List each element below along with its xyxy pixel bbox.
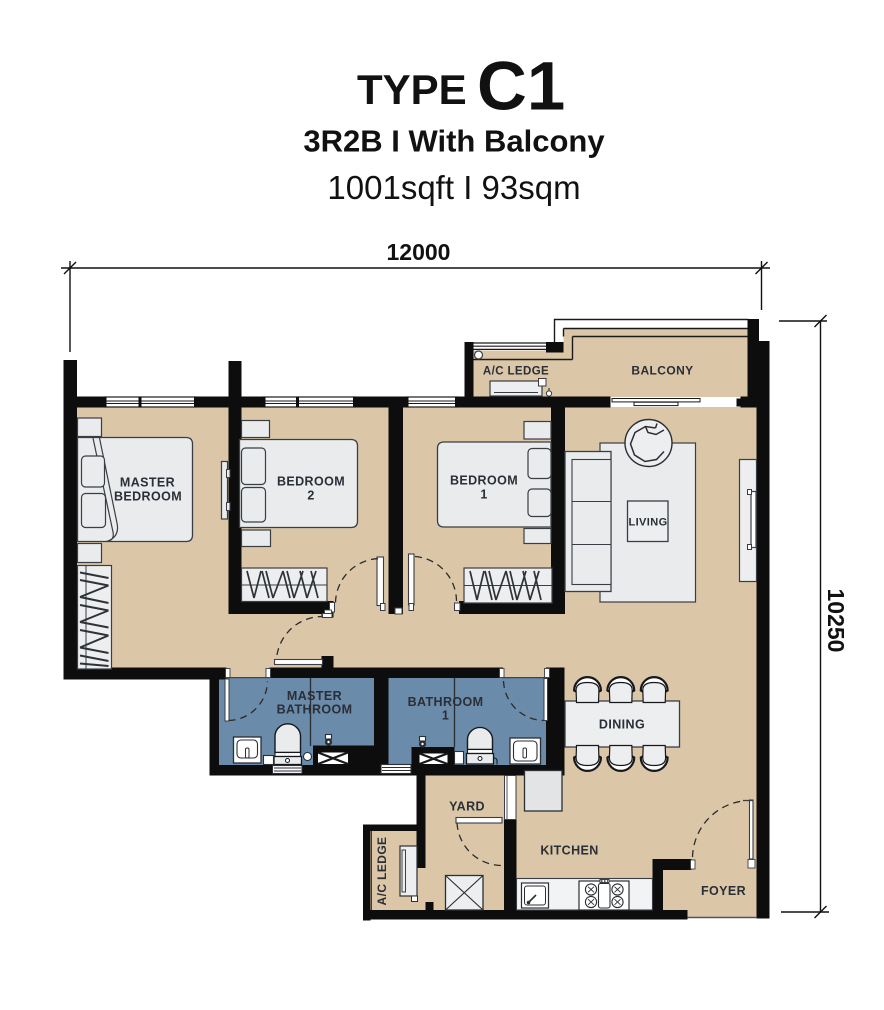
svg-text:3R2B I With Balcony: 3R2B I With Balcony — [303, 124, 605, 159]
svg-text:BEDROOM: BEDROOM — [277, 475, 345, 489]
svg-text:YARD: YARD — [449, 800, 485, 814]
svg-text:12000: 12000 — [387, 239, 451, 265]
svg-text:KITCHEN: KITCHEN — [540, 844, 598, 858]
svg-text:BEDROOM: BEDROOM — [450, 474, 518, 488]
svg-text:1001sqft I 93sqm: 1001sqft I 93sqm — [327, 169, 580, 206]
svg-text:A/C LEDGE: A/C LEDGE — [375, 837, 389, 906]
svg-text:FOYER: FOYER — [701, 884, 746, 898]
svg-text:C1: C1 — [477, 48, 565, 125]
svg-text:MASTER: MASTER — [120, 476, 175, 490]
svg-text:BALCONY: BALCONY — [631, 364, 693, 378]
svg-text:BEDROOM: BEDROOM — [114, 490, 182, 504]
svg-text:2: 2 — [307, 489, 314, 503]
svg-text:BATHROOM: BATHROOM — [408, 695, 484, 709]
svg-text:BATHROOM: BATHROOM — [277, 703, 353, 717]
svg-text:TYPE: TYPE — [357, 66, 467, 113]
svg-text:MASTER: MASTER — [287, 689, 342, 703]
svg-text:1: 1 — [480, 488, 487, 502]
svg-text:DINING: DINING — [599, 718, 645, 732]
svg-text:10250: 10250 — [823, 589, 849, 653]
svg-text:A/C LEDGE: A/C LEDGE — [483, 366, 549, 378]
svg-text:1: 1 — [442, 709, 449, 723]
svg-text:LIVING: LIVING — [628, 517, 667, 529]
